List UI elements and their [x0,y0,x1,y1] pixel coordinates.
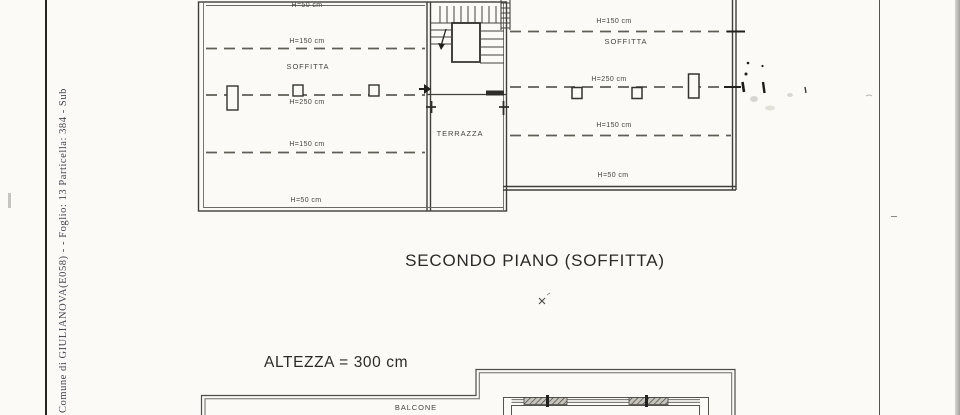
room-label-soffitta-left: SOFFITTA [287,62,330,71]
left-height-label-bottom: H=50 cm [290,197,321,204]
floor-title: SECONDO PIANO (SOFFITTA) [405,251,665,271]
room-label-soffitta-right: SOFFITTA [605,37,648,46]
right-height-label-lower: H=150 cm [596,122,631,129]
stair-direction-arrow [438,29,446,50]
ceiling-height-note: ALTEZZA = 300 cm [264,354,408,372]
right-height-label-upper: H=150 cm [596,18,631,25]
left-chimney-symbols [227,85,379,110]
left-height-label-lower: H=150 cm [289,141,324,148]
terrace-wall-ticks [426,101,509,115]
left-height-label-upper: H=150 cm [289,38,324,45]
right-wall-ticks [724,32,745,88]
left-height-label-middle: H=250 cm [289,99,324,106]
floor-plan-drawing [0,0,960,415]
scanned-cadastral-plan-page: Comune di GIULIANOVA(E058) - - Foglio: 1… [0,0,960,415]
right-height-label-middle: H=250 cm [591,76,626,83]
room-label-balcone: BALCONE [395,403,437,412]
lower-plan-building-walls [504,395,709,415]
right-soffitta-walls [501,0,736,190]
door-opening-arrow [419,84,431,94]
right-height-label-bottom: H=50 cm [597,172,628,179]
landing-threshold [486,91,504,96]
left-height-label-top: H=50 cm [291,2,322,9]
lower-plan-balcony-outline [202,370,736,415]
staircase [431,6,504,63]
room-label-terrazza: TERRAZZA [437,129,484,138]
